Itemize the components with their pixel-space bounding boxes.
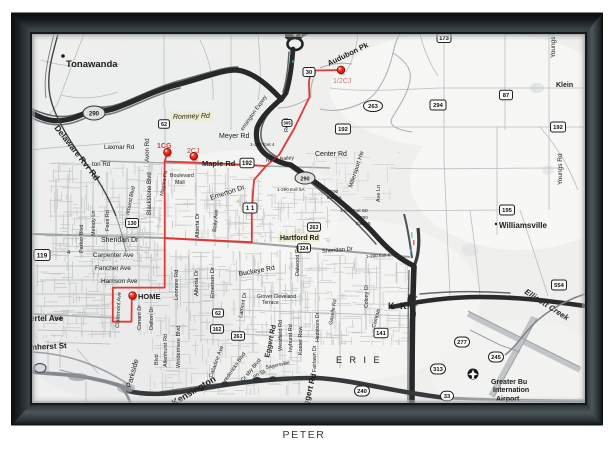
svg-text:290: 290 [300,176,309,182]
svg-text:245: 245 [491,355,501,361]
svg-text:Emerson Dr: Emerson Dr [210,267,216,298]
svg-text:Exit 5A: Exit 5A [327,195,342,200]
svg-text:Sheridan Dr: Sheridan Dr [101,237,139,244]
svg-text:Fees Rd: Fees Rd [105,210,111,231]
svg-text:K: K [400,301,407,311]
svg-text:Tonawanda: Tonawanda [66,59,118,70]
svg-text:Blackstone Blvd: Blackstone Blvd [147,172,153,215]
svg-text:PETER: PETER [282,429,325,441]
svg-text:Romney Rd: Romney Rd [173,113,211,121]
svg-text:ERIE: ERIE [336,355,387,365]
svg-text:1-290 Exit 5D: 1-290 Exit 5D [340,208,369,213]
svg-text:Allenhurst Rd: Allenhurst Rd [163,334,169,367]
svg-text:Mall: Mall [175,180,185,186]
svg-text:263: 263 [234,334,243,340]
svg-text:Avon Rd: Avon Rd [144,138,151,162]
svg-text:294: 294 [433,103,443,109]
svg-text:141: 141 [376,331,386,337]
svg-text:Dalwood Rd: Dalwood Rd [295,246,301,276]
svg-text:Alberta Dr: Alberta Dr [194,270,200,296]
svg-text:HOME: HOME [138,292,161,301]
svg-text:Carpenter Ave: Carpenter Ave [93,252,134,259]
svg-text:1 1: 1 1 [246,206,255,212]
svg-text:1-290: 1-290 [356,215,368,220]
svg-text:1-290 Exit 4: 1-290 Exit 4 [250,142,275,147]
svg-text:263: 263 [368,104,378,110]
svg-text:Terrace: Terrace [262,300,279,306]
svg-text:Internation: Internation [493,387,529,394]
svg-text:Colony Ct: Colony Ct [364,285,370,308]
svg-text:Parker Blvd: Parker Blvd [79,225,85,253]
svg-text:Maple Rd: Maple Rd [202,159,236,168]
svg-text:Williamsville: Williamsville [499,221,548,230]
svg-text:Hartford Rd: Hartford Rd [280,235,319,242]
svg-text:290: 290 [89,112,100,118]
svg-text:Center Rd: Center Rd [315,151,347,158]
svg-text:554: 554 [554,283,564,289]
svg-text:192: 192 [242,161,253,167]
svg-text:Youngs Rd: Youngs Rd [557,153,564,185]
svg-text:wk: wk [55,316,63,322]
svg-text:Greater Bu: Greater Bu [491,379,527,386]
svg-text:Windermere Blvd: Windermere Blvd [176,326,182,368]
svg-text:Westfield Rd: Westfield Rd [278,320,284,351]
svg-text:Hedstrom Dr: Hedstrom Dr [315,312,321,342]
svg-text:87: 87 [503,93,509,99]
svg-text:1-290 Exit 5A: 1-290 Exit 5A [277,187,306,192]
svg-text:Melody Ln: Melody Ln [91,211,97,236]
svg-text:313: 313 [433,367,443,373]
svg-text:Harrison Ave: Harrison Ave [101,278,138,285]
svg-text:Fancher Ave: Fancher Ave [95,265,131,272]
svg-text:Meyer Rd: Meyer Rd [219,133,249,140]
svg-text:305: 305 [283,121,291,126]
svg-text:Fairlawn Dr: Fairlawn Dr [312,345,318,372]
svg-text:192: 192 [553,125,563,131]
svg-text:195: 195 [502,208,512,214]
svg-text:62: 62 [215,311,221,317]
svg-text:30: 30 [306,70,312,76]
svg-text:263: 263 [310,225,319,231]
svg-text:277: 277 [457,340,467,346]
svg-text:Koster Row: Koster Row [298,327,304,355]
svg-text:130: 130 [127,221,136,227]
svg-text:Ivyhurst Rd: Ivyhurst Rd [288,324,294,352]
svg-text:1/2CJ: 1/2CJ [333,78,351,85]
svg-text:Exit 5B: Exit 5B [356,221,371,226]
svg-text:Blvd: Blvd [154,354,160,365]
svg-text:FR90: FR90 [327,189,339,194]
svg-text:Boulevard: Boulevard [170,173,194,179]
svg-text:ton Rd: ton Rd [92,161,111,168]
svg-text:4: 4 [67,250,70,256]
svg-text:162: 162 [213,327,222,333]
svg-text:Leonore Rd: Leonore Rd [174,270,180,300]
svg-text:Laxmar Rd: Laxmar Rd [104,144,135,151]
svg-text:Ave Ln: Ave Ln [376,185,382,202]
svg-text:62: 62 [161,122,167,128]
svg-text:Alberta Dr: Alberta Dr [195,213,201,238]
svg-text:K: K [388,301,395,311]
svg-text:Conant Dr: Conant Dr [137,305,143,330]
svg-text:192: 192 [338,127,348,133]
svg-text:Dalton Dr: Dalton Dr [149,307,155,330]
svg-text:240: 240 [357,389,367,395]
svg-text:Klein: Klein [556,82,573,89]
